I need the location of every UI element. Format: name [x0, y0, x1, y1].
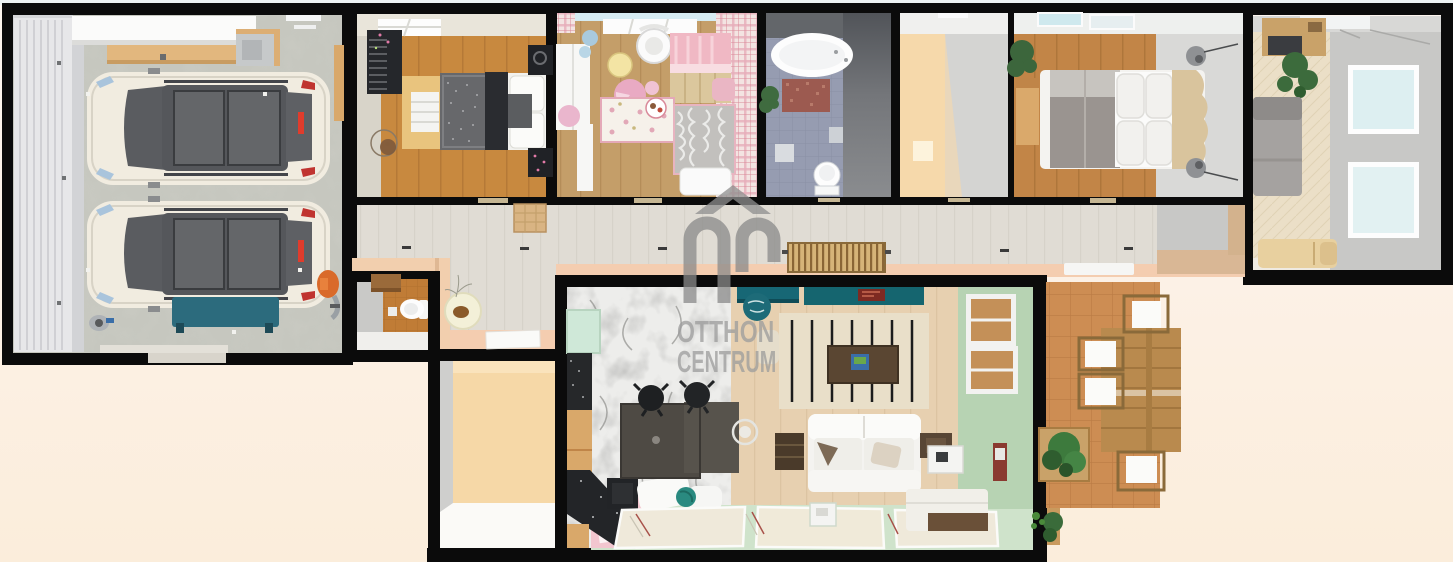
svg-text:CENTRUM: CENTRUM [677, 344, 776, 379]
